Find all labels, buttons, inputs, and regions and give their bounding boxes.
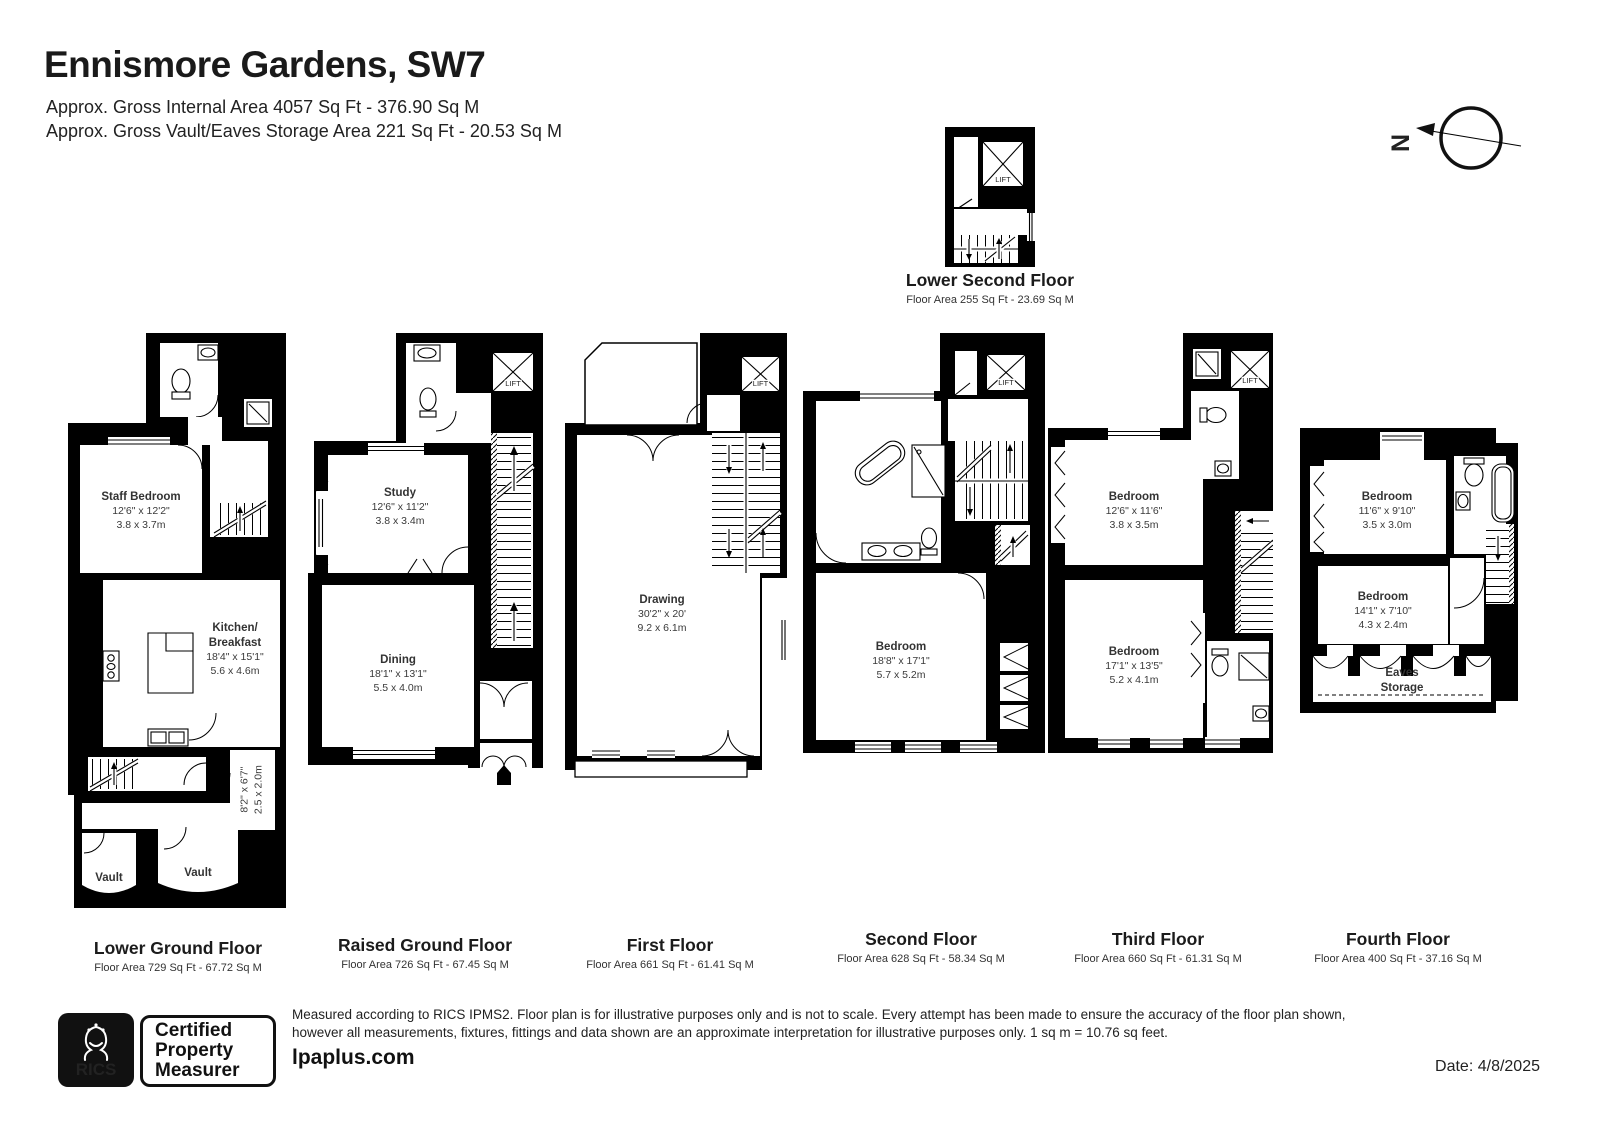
balcony — [575, 761, 747, 777]
vanity-icon — [862, 543, 920, 560]
caption-second-floor: Second Floor Floor Area 628 Sq Ft - 58.3… — [811, 929, 1031, 965]
compass-north-label: N — [1387, 134, 1415, 152]
window — [353, 747, 435, 759]
wardrobe — [1310, 466, 1324, 552]
lift-label: LIFT — [505, 379, 521, 388]
room-label-drawing: Drawing 30'2" x 20' 9.2 x 6.1m — [602, 593, 722, 635]
staircase — [954, 235, 1018, 263]
window — [1108, 428, 1160, 440]
wardrobe — [1051, 447, 1065, 543]
cupboard — [955, 351, 977, 395]
plan-first-floor: LIFT — [552, 333, 787, 783]
window — [855, 742, 891, 752]
caption-third-floor: Third Floor Floor Area 660 Sq Ft - 61.31… — [1048, 929, 1268, 965]
floorplan-sheet: Ennismore Gardens, SW7 Approx. Gross Int… — [0, 0, 1600, 1131]
staircase — [491, 433, 533, 648]
lift: LIFT — [742, 357, 779, 391]
plan-third-floor: LIFT — [1043, 333, 1273, 753]
window — [905, 742, 941, 752]
brand-url: lpaplus.com — [292, 1046, 415, 1070]
room-label-third-bedroom-lower: Bedroom 17'1" x 13'5" 5.2 x 4.1m — [1074, 645, 1194, 687]
lift: LIFT — [493, 353, 533, 391]
gross-internal-area: Approx. Gross Internal Area 4057 Sq Ft -… — [46, 97, 479, 118]
window — [780, 620, 787, 660]
compass-icon: N — [1387, 108, 1521, 168]
hob-icon — [103, 651, 119, 681]
lift-label: LIFT — [998, 378, 1014, 387]
caption-first-floor: First Floor Floor Area 661 Sq Ft - 61.41… — [560, 935, 780, 971]
staircase — [712, 433, 780, 573]
caption-raised-ground-floor: Raised Ground Floor Floor Area 726 Sq Ft… — [315, 935, 535, 971]
cupboard — [954, 137, 978, 211]
caption-fourth-floor: Fourth Floor Floor Area 400 Sq Ft - 37.1… — [1288, 929, 1508, 965]
room-label-eaves-storage: Eaves Storage — [1342, 666, 1462, 696]
terrace — [585, 343, 697, 425]
corridor — [188, 417, 222, 445]
room-label-lobby: 8'2" x 6'7" 2.5 x 2.0m — [238, 745, 265, 835]
staircase — [1235, 511, 1273, 633]
caption-lower-second-floor: Lower Second Floor Floor Area 255 Sq Ft … — [880, 270, 1100, 306]
toilet-icon — [1465, 464, 1483, 486]
bathroom — [160, 343, 218, 417]
rics-wordmark: RICS — [76, 1060, 117, 1079]
room-label-fourth-bedroom-lower: Bedroom 14'1" x 7'10" 4.3 x 2.4m — [1323, 590, 1443, 632]
room-label-dining: Dining 18'1" x 13'1" 5.5 x 4.0m — [338, 653, 458, 695]
page-title: Ennismore Gardens, SW7 — [44, 44, 485, 86]
lift: LIFT — [983, 142, 1023, 186]
lift: LIFT — [1231, 351, 1269, 388]
toilet-icon — [172, 369, 190, 393]
wardrobe-niches — [1000, 643, 1028, 729]
windows-bottom — [1098, 737, 1240, 748]
window — [368, 443, 424, 455]
certified-property-measurer-badge: Certified Property Measurer — [140, 1015, 276, 1087]
entrance-porch — [480, 681, 532, 785]
vault-eaves-area: Approx. Gross Vault/Eaves Storage Area 2… — [46, 121, 562, 142]
window — [592, 748, 620, 758]
lift-label: LIFT — [1242, 376, 1258, 385]
bay-window — [316, 481, 328, 565]
disclaimer-line-2: however all measurements, fixtures, fitt… — [292, 1025, 1168, 1040]
stair-lower — [995, 525, 1030, 565]
plan-raised-ground-floor: LIFT — [308, 333, 543, 878]
bathroom — [1207, 641, 1269, 738]
lift-label: LIFT — [753, 379, 769, 388]
room-label-second-bedroom: Bedroom 18'8" x 17'1" 5.7 x 5.2m — [841, 640, 961, 682]
plan-lower-second-floor: LIFT — [945, 127, 1035, 267]
room-label-kitchen: Kitchen/ Breakfast 18'4" x 15'1" 5.6 x 4… — [175, 621, 295, 678]
rics-logo: RICS — [58, 1013, 134, 1087]
toilet-icon — [922, 528, 937, 548]
date-label: Date: 4/8/2025 — [1340, 1058, 1540, 1076]
window — [1027, 213, 1035, 241]
stair-corridor — [210, 441, 268, 537]
hall — [948, 399, 1028, 441]
room-label-vault-right: Vault — [158, 866, 238, 881]
disclaimer-line-1: Measured according to RICS IPMS2. Floor … — [292, 1007, 1346, 1022]
window — [960, 742, 997, 752]
room-label-vault-left: Vault — [69, 871, 149, 886]
window — [860, 391, 934, 401]
window — [108, 437, 170, 447]
toilet-icon — [1206, 408, 1226, 423]
north-compass: N — [1385, 100, 1535, 180]
shower — [1193, 349, 1221, 379]
dormer-windows — [1327, 645, 1459, 656]
plan-second-floor: LIFT — [798, 333, 1045, 753]
room-label-staff-bedroom: Staff Bedroom 12'6" x 12'2" 3.8 x 3.7m — [81, 490, 201, 532]
shower — [912, 445, 945, 497]
bathtub-icon — [1492, 464, 1514, 522]
lift: LIFT — [987, 355, 1025, 390]
lift-label: LIFT — [995, 175, 1011, 184]
room-label-third-bedroom-upper: Bedroom 12'6" x 11'6" 3.8 x 3.5m — [1074, 490, 1194, 532]
toilet-icon — [420, 388, 436, 410]
room-label-study: Study 12'6" x 11'2" 3.8 x 3.4m — [340, 486, 460, 528]
bay-window — [1380, 432, 1424, 462]
vault-passage — [82, 803, 238, 829]
caption-lower-ground-floor: Lower Ground Floor Floor Area 729 Sq Ft … — [68, 938, 288, 974]
vault-right — [158, 827, 238, 892]
room-label-fourth-bedroom-upper: Bedroom 11'6" x 9'10" 3.5 x 3.0m — [1327, 490, 1447, 532]
wc — [406, 343, 456, 443]
toilet-icon — [1212, 656, 1228, 676]
shower — [1239, 653, 1269, 680]
stairs — [1486, 524, 1514, 604]
landing — [1450, 558, 1484, 644]
hall — [954, 209, 1027, 235]
shower — [244, 399, 272, 427]
staircase — [955, 441, 1028, 521]
window — [647, 748, 675, 758]
bathroom — [816, 391, 945, 563]
rear-hall-stairs — [88, 757, 206, 791]
